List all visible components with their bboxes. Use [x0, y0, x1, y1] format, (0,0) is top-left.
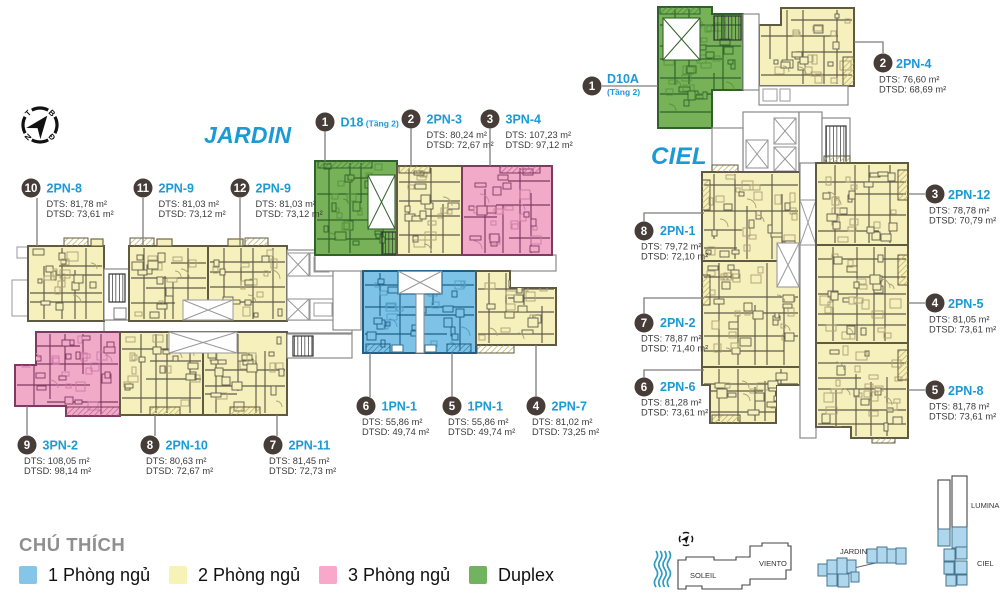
svg-text:1PN-1: 1PN-1 [468, 400, 503, 414]
svg-text:CHÚ THÍCH: CHÚ THÍCH [19, 534, 125, 555]
svg-text:D18 (Tầng 2): D18 (Tầng 2) [341, 116, 400, 130]
svg-text:DTSD: 98,14 m²: DTSD: 98,14 m² [24, 466, 91, 476]
svg-text:DTS: 81,05 m²: DTS: 81,05 m² [929, 315, 989, 325]
svg-text:DTS: 81,78 m²: DTS: 81,78 m² [47, 199, 107, 209]
svg-text:5: 5 [449, 401, 456, 413]
svg-text:DTS: 108,05 m²: DTS: 108,05 m² [24, 456, 90, 466]
svg-text:7: 7 [270, 440, 276, 452]
svg-text:2PN-11: 2PN-11 [289, 439, 331, 453]
svg-text:DTSD: 73,61 m²: DTSD: 73,61 m² [641, 408, 708, 418]
svg-text:DTSD: 73,61 m²: DTSD: 73,61 m² [929, 325, 996, 335]
svg-text:DTSD: 73,25 m²: DTSD: 73,25 m² [532, 427, 599, 437]
svg-text:2PN-8: 2PN-8 [47, 182, 82, 196]
svg-text:DTSD: 72,67 m²: DTSD: 72,67 m² [146, 466, 213, 476]
svg-text:1 Phòng ngủ: 1 Phòng ngủ [48, 565, 150, 585]
svg-text:DTSD: 73,12 m²: DTSD: 73,12 m² [256, 209, 323, 219]
svg-text:3PN-4: 3PN-4 [506, 113, 541, 127]
svg-text:SOLEIL: SOLEIL [690, 571, 716, 580]
svg-text:DTSD: 49,74 m²: DTSD: 49,74 m² [362, 427, 429, 437]
svg-text:DTS: 55,86 m²: DTS: 55,86 m² [448, 417, 508, 427]
svg-text:2PN-12: 2PN-12 [948, 188, 990, 202]
svg-text:DTS: 81,03 m²: DTS: 81,03 m² [256, 199, 316, 209]
svg-text:DTS: 76,60 m²: DTS: 76,60 m² [879, 75, 939, 85]
svg-text:2PN-1: 2PN-1 [660, 224, 695, 238]
svg-text:2PN-4: 2PN-4 [896, 57, 931, 71]
svg-text:2 Phòng ngủ: 2 Phòng ngủ [198, 565, 300, 585]
svg-text:8: 8 [147, 440, 154, 452]
svg-text:11: 11 [137, 183, 150, 195]
svg-text:10: 10 [25, 183, 38, 195]
svg-text:5: 5 [932, 385, 939, 397]
svg-text:DTSD: 68,69 m²: DTSD: 68,69 m² [879, 85, 946, 95]
svg-text:3 Phòng ngủ: 3 Phòng ngủ [348, 565, 450, 585]
svg-text:2PN-10: 2PN-10 [166, 439, 208, 453]
svg-text:3: 3 [487, 114, 493, 126]
svg-text:LUMINA: LUMINA [971, 501, 999, 510]
svg-text:2: 2 [408, 114, 414, 126]
svg-text:CIEL: CIEL [977, 559, 994, 568]
svg-text:8: 8 [641, 226, 648, 238]
svg-text:6: 6 [641, 382, 647, 394]
svg-text:Duplex: Duplex [498, 565, 554, 585]
svg-text:CIEL: CIEL [651, 143, 707, 170]
svg-text:2PN-9: 2PN-9 [159, 182, 194, 196]
svg-text:DTS: 80,63 m²: DTS: 80,63 m² [146, 456, 206, 466]
svg-text:3: 3 [932, 189, 938, 201]
svg-text:DTS: 81,02 m²: DTS: 81,02 m² [532, 417, 592, 427]
svg-text:DTS: 79,72 m²: DTS: 79,72 m² [641, 242, 701, 252]
svg-text:2: 2 [880, 58, 886, 70]
svg-text:DTS: 80,24 m²: DTS: 80,24 m² [427, 130, 487, 140]
svg-text:DTS: 81,28 m²: DTS: 81,28 m² [641, 398, 701, 408]
svg-text:6: 6 [363, 401, 369, 413]
svg-text:12: 12 [234, 183, 247, 195]
svg-text:4: 4 [533, 401, 540, 413]
svg-text:DTSD: 72,10 m²: DTSD: 72,10 m² [641, 252, 708, 262]
svg-text:2PN-5: 2PN-5 [948, 297, 983, 311]
svg-text:4: 4 [932, 298, 939, 310]
svg-text:DTS: 78,87 m²: DTS: 78,87 m² [641, 334, 701, 344]
svg-text:1: 1 [589, 81, 596, 93]
svg-text:3PN-2: 3PN-2 [43, 439, 78, 453]
svg-text:1PN-1: 1PN-1 [382, 400, 417, 414]
svg-text:DTS: 78,78 m²: DTS: 78,78 m² [929, 206, 989, 216]
svg-text:DTS: 81,78 m²: DTS: 81,78 m² [929, 402, 989, 412]
svg-text:1: 1 [322, 117, 329, 129]
svg-text:DTSD: 72,67 m²: DTSD: 72,67 m² [427, 140, 494, 150]
svg-text:DTS: 81,03 m²: DTS: 81,03 m² [159, 199, 219, 209]
svg-text:2PN-9: 2PN-9 [256, 182, 291, 196]
svg-text:JARDIN: JARDIN [840, 547, 867, 556]
svg-text:2PN-2: 2PN-2 [660, 316, 695, 330]
svg-text:9: 9 [24, 440, 30, 452]
svg-text:DTSD: 73,61 m²: DTSD: 73,61 m² [47, 209, 114, 219]
svg-text:2PN-3: 2PN-3 [427, 113, 462, 127]
svg-text:DTSD: 73,61 m²: DTSD: 73,61 m² [929, 412, 996, 422]
svg-text:7: 7 [641, 318, 647, 330]
svg-text:DTSD: 73,12 m²: DTSD: 73,12 m² [159, 209, 226, 219]
svg-text:DTSD: 70,79 m²: DTSD: 70,79 m² [929, 216, 996, 226]
svg-text:VIENTO: VIENTO [759, 559, 787, 568]
svg-text:DTS: 81,45 m²: DTS: 81,45 m² [269, 456, 329, 466]
svg-text:2PN-6: 2PN-6 [660, 380, 695, 394]
svg-text:DTS: 107,23 m²: DTS: 107,23 m² [506, 130, 572, 140]
svg-text:2PN-8: 2PN-8 [948, 384, 983, 398]
svg-text:DTSD: 71,40 m²: DTSD: 71,40 m² [641, 344, 708, 354]
svg-text:2PN-7: 2PN-7 [552, 400, 587, 414]
svg-text:JARDIN: JARDIN [204, 122, 292, 148]
svg-text:D10A: D10A [607, 72, 639, 86]
svg-text:DTSD: 49,74 m²: DTSD: 49,74 m² [448, 427, 515, 437]
svg-text:(Tầng 2): (Tầng 2) [607, 87, 640, 97]
svg-text:DTS: 55,86 m²: DTS: 55,86 m² [362, 417, 422, 427]
svg-text:DTSD: 72,73 m²: DTSD: 72,73 m² [269, 466, 336, 476]
svg-text:DTSD: 97,12 m²: DTSD: 97,12 m² [506, 140, 573, 150]
